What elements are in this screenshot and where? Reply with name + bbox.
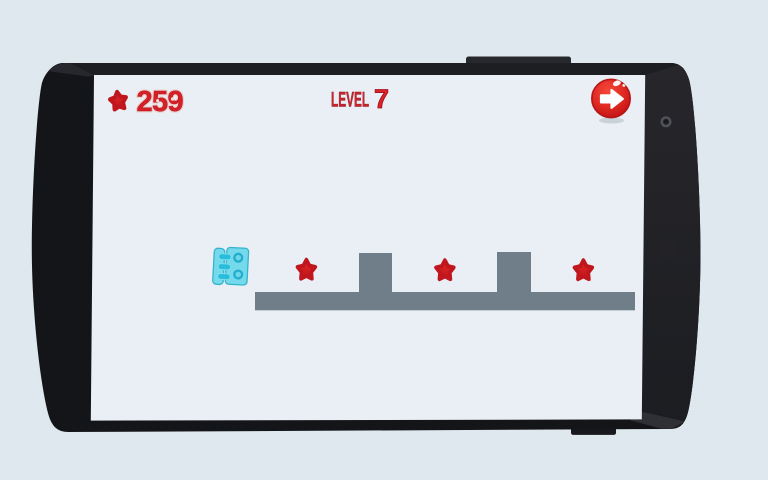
svg-text:LEVEL: LEVEL bbox=[331, 87, 369, 112]
svg-text:259: 259 bbox=[137, 86, 184, 118]
svg-text:7: 7 bbox=[374, 84, 389, 114]
